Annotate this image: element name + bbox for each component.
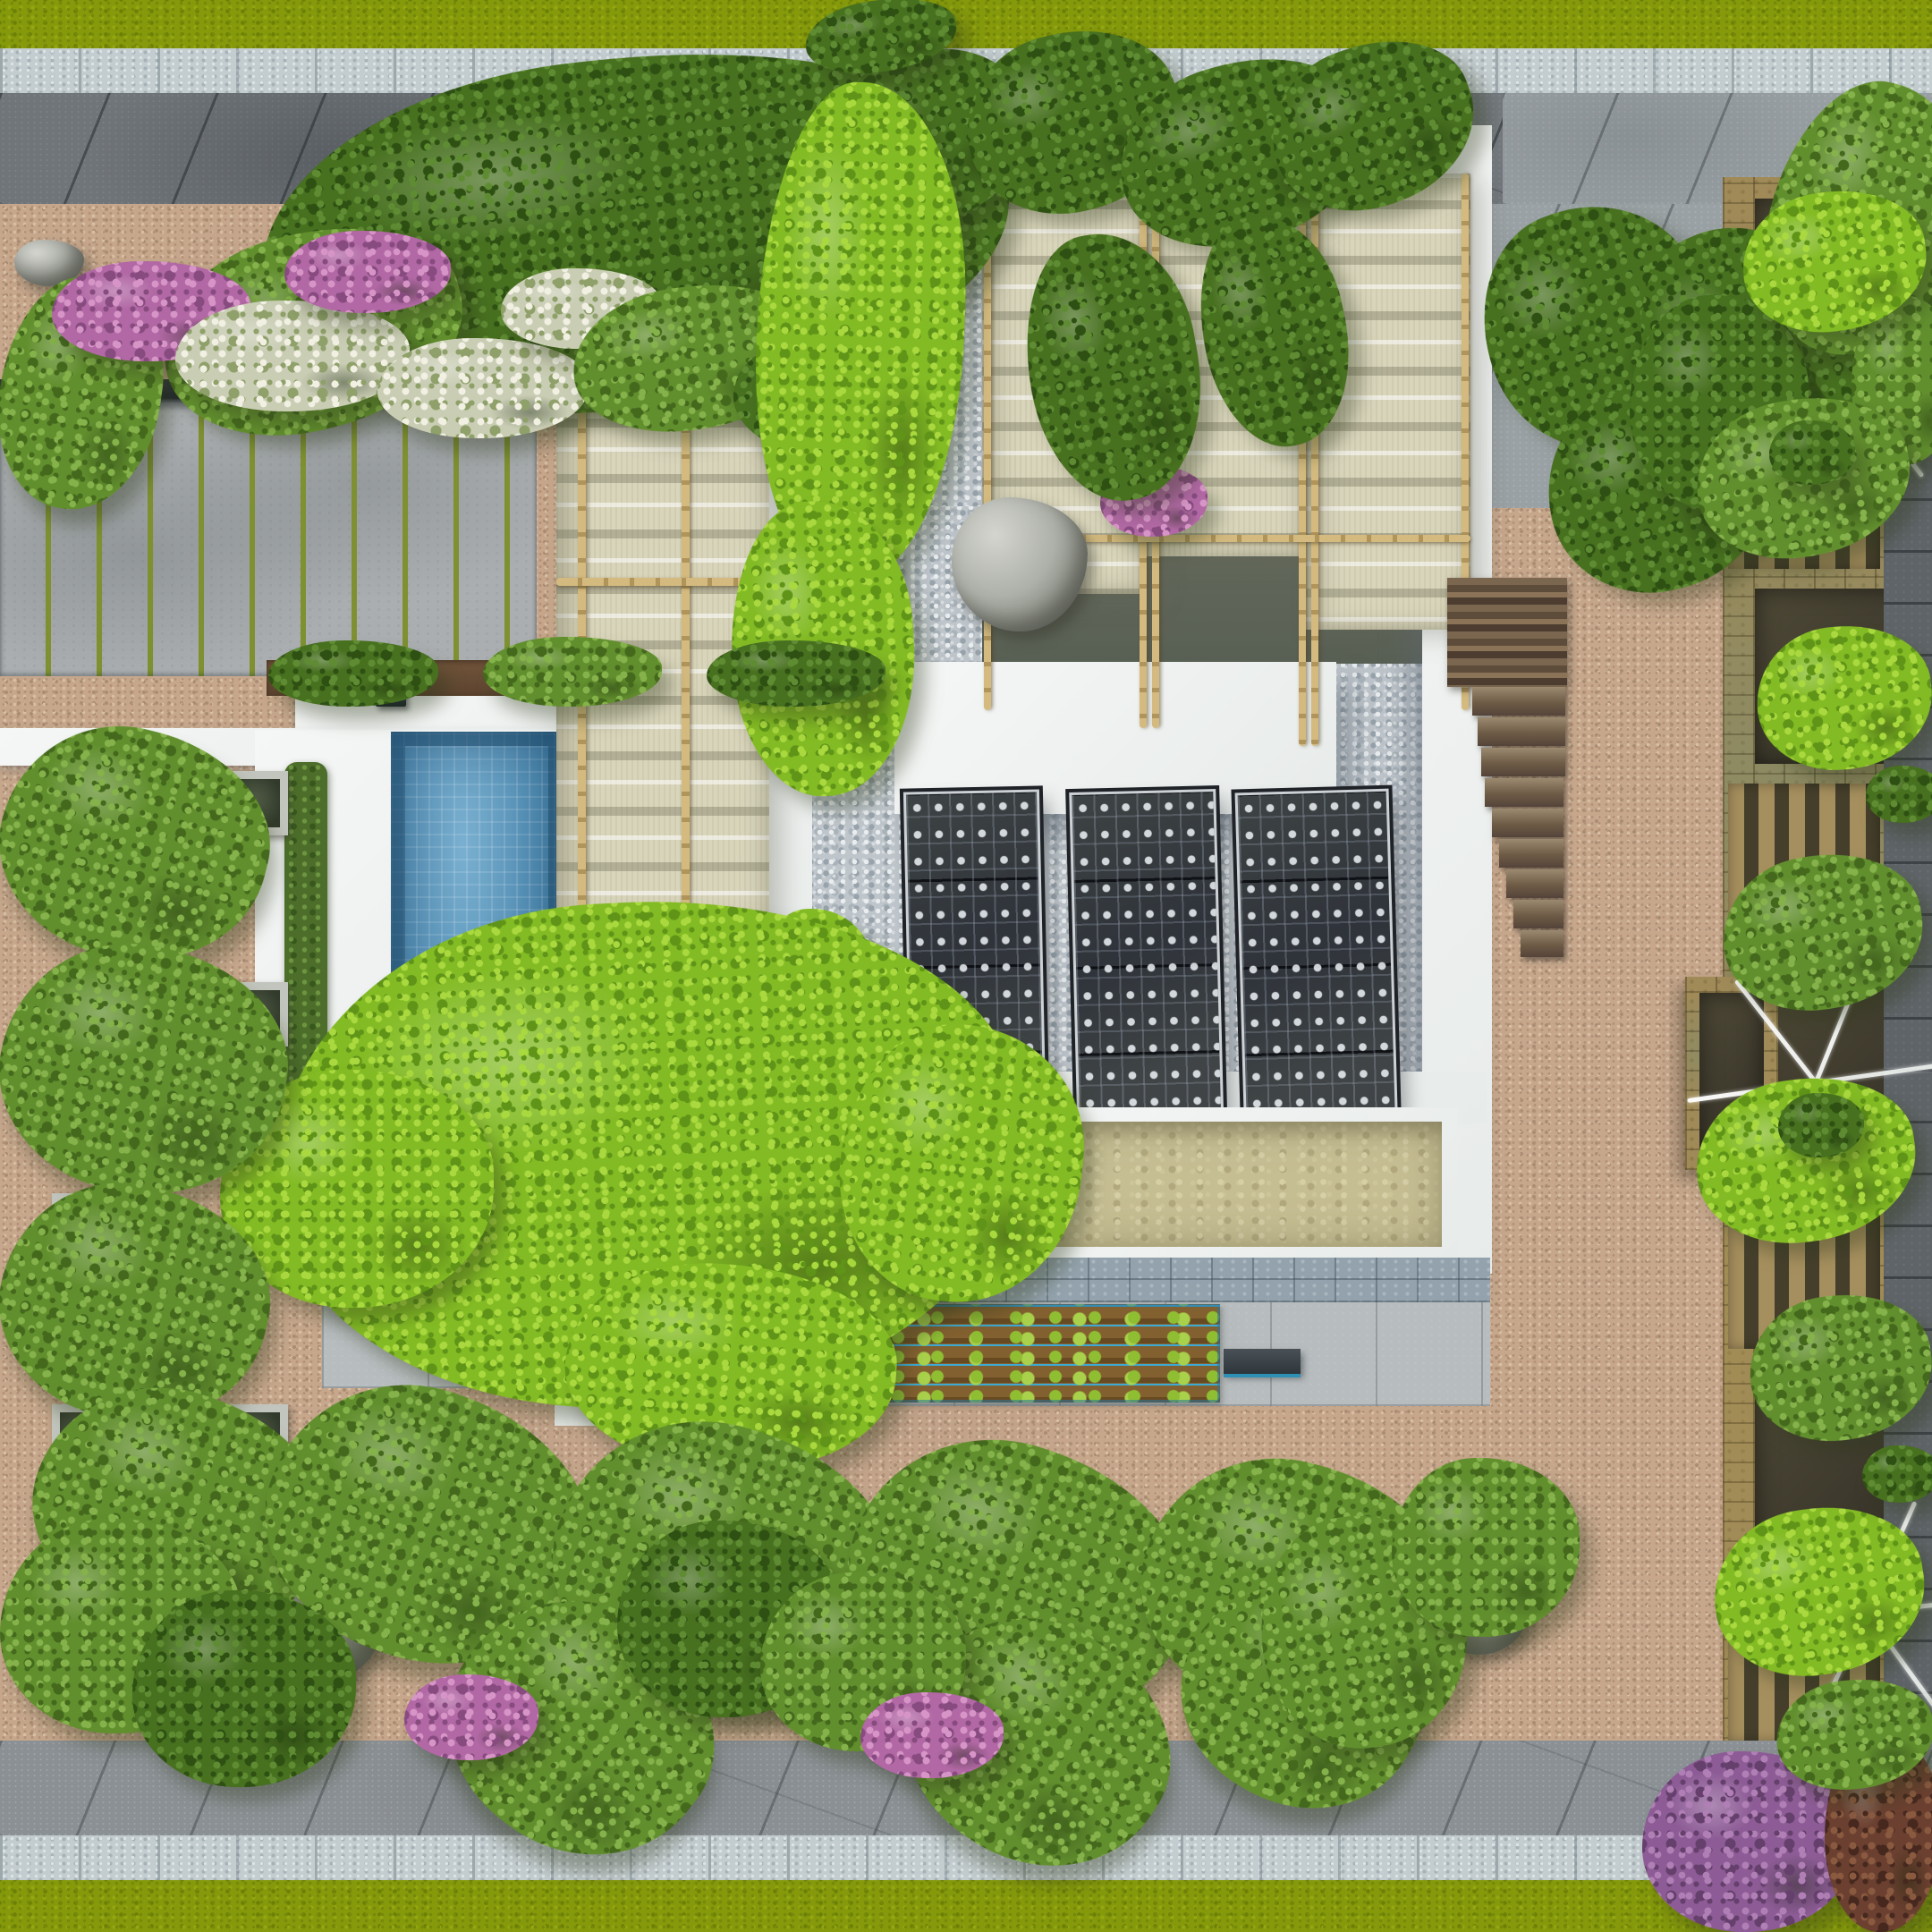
flower-cluster-white [377, 338, 589, 438]
flower-cluster-pink [284, 231, 451, 313]
water-channel-bench [1224, 1349, 1301, 1374]
flower-cluster-white [175, 301, 410, 411]
shrub [1392, 1458, 1580, 1637]
solar-panel [1235, 789, 1399, 1144]
yucca-plant [1769, 420, 1855, 485]
stair-step [1521, 930, 1563, 957]
vegetable-bed [871, 1304, 1220, 1402]
stair-landing [1447, 578, 1567, 687]
stair-step [1481, 748, 1565, 776]
solar-panel [1069, 789, 1224, 1143]
yucca-plant [1778, 1093, 1864, 1157]
shrub [268, 640, 438, 707]
flower-cluster-pink [860, 1692, 1004, 1778]
stair-step [1485, 778, 1563, 807]
shrub [707, 640, 885, 707]
flower-cluster-pink [404, 1674, 538, 1760]
stair-step [1478, 717, 1565, 746]
stair-step [1513, 900, 1563, 928]
lawn-strip-top [0, 0, 1932, 48]
aerial-garden-render [0, 0, 1932, 1932]
pergola-bamboo-tie [556, 578, 769, 586]
shrub [132, 1590, 356, 1787]
stair-step [1506, 869, 1563, 898]
stair-step [1492, 809, 1563, 837]
yucca-plant [1862, 1445, 1932, 1503]
yucca-plant [1866, 766, 1932, 823]
lawn-strip-bottom [0, 1880, 1932, 1932]
shrub [483, 637, 662, 707]
stair-step [1472, 687, 1565, 716]
stair-step [1499, 839, 1563, 868]
